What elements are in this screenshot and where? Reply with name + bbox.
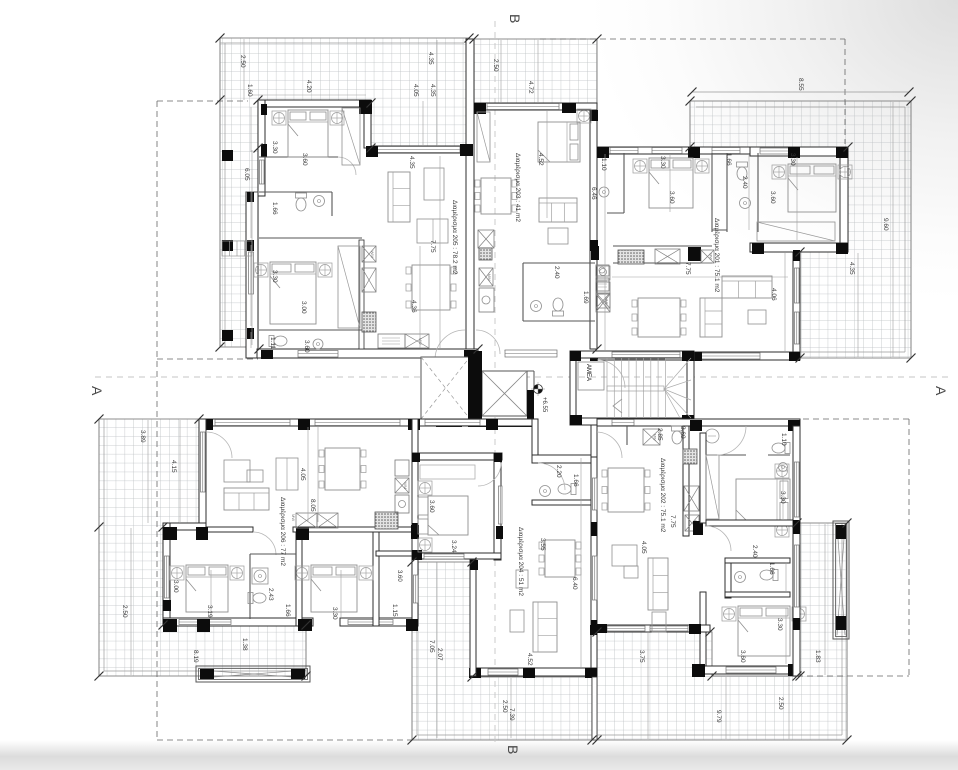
svg-text:2.07: 2.07 [436,648,443,661]
svg-text:MW: MW [487,274,492,281]
svg-text:B: B [505,745,521,754]
svg-text:1.66: 1.66 [271,202,278,215]
svg-text:3.19: 3.19 [206,605,213,618]
svg-text:Διαμέρισμα 205 : 78.2 m2: Διαμέρισμα 205 : 78.2 m2 [451,200,459,275]
svg-text:A: A [89,386,105,396]
svg-text:2.50: 2.50 [777,697,784,710]
svg-text:3.30: 3.30 [331,607,338,620]
svg-text:MW: MW [418,338,423,345]
svg-text:+6.55: +6.55 [541,397,547,413]
svg-text:3.30: 3.30 [789,153,796,166]
svg-text:2.43: 2.43 [267,588,274,601]
svg-text:3.60: 3.60 [428,500,435,513]
svg-text:3.60: 3.60 [668,191,675,204]
svg-text:4.05: 4.05 [640,541,647,554]
svg-text:3.55: 3.55 [539,538,546,551]
svg-text:A: A [933,386,949,396]
svg-text:3.30: 3.30 [271,141,278,154]
svg-text:4.36: 4.36 [410,300,417,313]
svg-text:3.75: 3.75 [638,650,645,663]
svg-text:7.05: 7.05 [428,640,435,653]
svg-text:4.52: 4.52 [526,653,533,666]
svg-text:2.50: 2.50 [239,55,246,68]
svg-text:3.30: 3.30 [271,270,278,283]
svg-text:4.05: 4.05 [412,84,419,97]
svg-text:4.35: 4.35 [848,262,855,275]
svg-text:3.60: 3.60 [303,340,310,353]
svg-text:4.35: 4.35 [427,52,434,65]
svg-text:AMEA: AMEA [585,364,591,381]
svg-text:MW: MW [709,253,714,260]
svg-text:6.40: 6.40 [571,577,578,590]
svg-text:B: B [507,14,523,23]
svg-text:3.30: 3.30 [779,491,786,504]
svg-text:2.50: 2.50 [501,700,508,713]
svg-text:4.05: 4.05 [299,468,306,481]
svg-text:1.66: 1.66 [572,474,579,487]
svg-text:1.66: 1.66 [725,153,732,166]
svg-text:1.10: 1.10 [780,433,787,446]
svg-text:3.60: 3.60 [769,191,776,204]
svg-text:7.75: 7.75 [429,240,436,253]
svg-text:6.05: 6.05 [243,168,250,181]
svg-text:1.66: 1.66 [284,604,291,617]
svg-text:Διαμέρισμα 206 : 77 m2: Διαμέρισμα 206 : 77 m2 [279,497,287,566]
svg-text:3.30: 3.30 [659,156,666,169]
svg-text:WM: WM [370,251,375,258]
svg-text:8.05: 8.05 [309,499,316,512]
svg-text:3.30: 3.30 [776,618,783,631]
svg-text:3.24: 3.24 [450,540,457,553]
svg-text:2.50: 2.50 [492,59,499,72]
svg-text:3.89: 3.89 [139,430,146,443]
svg-text:2.85: 2.85 [656,428,663,441]
svg-text:1.60: 1.60 [246,84,253,97]
svg-text:4.72: 4.72 [527,81,534,94]
svg-text:7.39: 7.39 [508,708,515,721]
svg-text:2.40: 2.40 [751,545,758,558]
svg-text:Διαμέρισμα 204 : 51 m2: Διαμέρισμα 204 : 51 m2 [517,527,525,596]
svg-text:4.20: 4.20 [305,80,312,93]
svg-text:4.52: 4.52 [537,153,544,166]
svg-text:1.38: 1.38 [241,638,248,651]
svg-text:2.40: 2.40 [553,266,560,279]
svg-text:7.75: 7.75 [669,515,676,528]
svg-text:9.79: 9.79 [715,710,722,723]
svg-text:WM: WM [403,482,408,489]
svg-text:MW: MW [291,514,296,521]
svg-text:4.15: 4.15 [170,460,177,473]
svg-text:1.69: 1.69 [582,291,589,304]
svg-text:8.55: 8.55 [797,78,804,91]
svg-text:1.11: 1.11 [269,337,276,350]
svg-text:3.60: 3.60 [396,570,402,582]
svg-text:1.10: 1.10 [600,158,607,171]
svg-text:3.60: 3.60 [739,650,746,663]
svg-text:1.66: 1.66 [768,562,775,575]
svg-text:4.35: 4.35 [429,84,436,97]
svg-text:6.46: 6.46 [590,187,597,200]
svg-text:3.60: 3.60 [679,426,686,439]
svg-text:3.00: 3.00 [172,580,179,593]
svg-text:3.00: 3.00 [300,301,307,314]
svg-text:Διαμέρισμα 201 : 75.1 m2: Διαμέρισμα 201 : 75.1 m2 [713,218,721,293]
svg-text:3.60: 3.60 [301,153,308,166]
svg-text:1.83: 1.83 [814,650,821,663]
svg-text:4.06: 4.06 [770,288,777,301]
svg-text:7.75: 7.75 [684,262,691,275]
svg-text:1.15: 1.15 [391,604,398,617]
svg-text:8.19: 8.19 [192,650,199,663]
svg-text:2.40: 2.40 [741,176,748,189]
svg-text:2.50: 2.50 [121,605,128,618]
svg-text:9.60: 9.60 [882,218,889,231]
svg-text:Διαμέρισμα 202 : 75.1 m2: Διαμέρισμα 202 : 75.1 m2 [659,458,667,533]
svg-text:Διαμέρισμα 203 : 41 m2: Διαμέρισμα 203 : 41 m2 [514,153,522,222]
svg-text:2.20: 2.20 [555,465,562,478]
svg-text:4.35: 4.35 [408,156,415,169]
